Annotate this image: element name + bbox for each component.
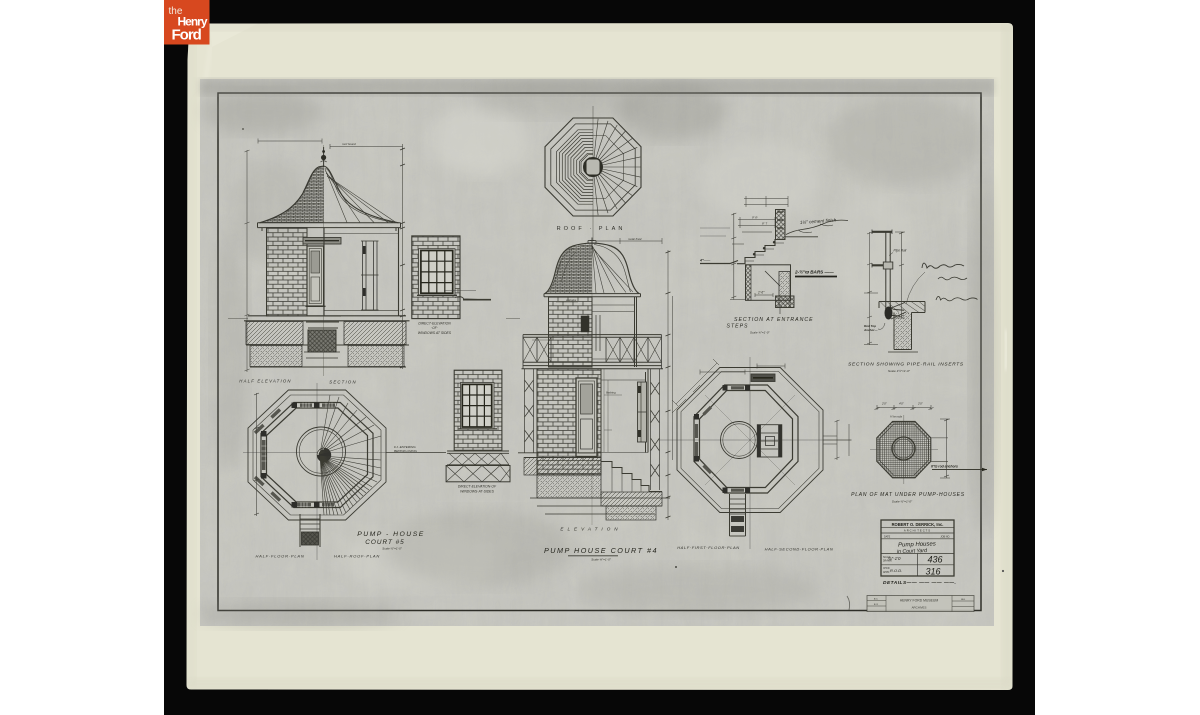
svg-text:¼″·1′0: ¼″·1′0 [888, 556, 901, 561]
svg-text:NEG: NEG [961, 599, 966, 601]
svg-text:2-½″ϖ BARS ——: 2-½″ϖ BARS —— [794, 269, 834, 275]
svg-text:Scale 1½″=1′-0″: Scale 1½″=1′-0″ [888, 369, 911, 373]
svg-text:SECTION SHOWING PIPE-RAIL INSE: SECTION SHOWING PIPE-RAIL INSERTS [848, 362, 964, 368]
svg-text:flashing: flashing [606, 391, 616, 395]
svg-text:R.O.D.: R.O.D. [890, 568, 902, 573]
svg-text:shingles: shingles [566, 298, 577, 302]
svg-text:Pipe Rail: Pipe Rail [894, 249, 907, 253]
svg-text:Scale ½″=1′-0″: Scale ½″=1′-0″ [382, 547, 403, 551]
svg-text:6″ϖ rod anchors: 6″ϖ rod anchors [931, 465, 958, 469]
svg-text:·OF·: ·OF· [431, 326, 438, 330]
svg-text:SECTION AT ENTRANCE: SECTION AT ENTRANCE [734, 317, 814, 323]
svg-text:2′0″: 2′0″ [917, 402, 924, 406]
svg-text:4″——: 4″—— [699, 259, 711, 263]
svg-text:DETAILS—— —— —— ——.: DETAILS—— —— —— ——. [883, 580, 956, 586]
svg-text:9″ R: 9″ R [752, 215, 757, 219]
svg-text:CHKD: CHKD [883, 568, 890, 570]
svg-text:2′-6″: 2′-6″ [757, 291, 765, 295]
svg-text:HALF·FLOOR·PLAN: HALF·FLOOR·PLAN [255, 554, 304, 559]
svg-text:in Court Yard: in Court Yard [897, 548, 928, 555]
svg-text:Ford: Ford [172, 27, 202, 44]
svg-text:Scale ¾″=1′-0″: Scale ¾″=1′-0″ [750, 331, 771, 335]
svg-text:roof board: roof board [342, 142, 356, 146]
svg-text:HALF·FIRST·FLOOR·PLAN: HALF·FIRST·FLOOR·PLAN [677, 545, 740, 550]
svg-text:316: 316 [925, 567, 940, 577]
svg-text:WINDOWS AT SIDES: WINDOWS AT SIDES [418, 331, 452, 335]
svg-text:DIRECT·ELEVATION·OF: DIRECT·ELEVATION·OF [458, 485, 497, 489]
svg-text:8″ T: 8″ T [762, 222, 767, 226]
svg-text:SECTION: SECTION [329, 380, 357, 385]
svg-text:ARCHITECTS: ARCHITECTS [904, 529, 931, 533]
svg-text:¾″ϖ rods: ¾″ϖ rods [890, 415, 903, 419]
svg-text:HALF ELEVATION: HALF ELEVATION [239, 379, 291, 384]
svg-text:2′0″: 2′0″ [881, 402, 888, 406]
svg-text:BEHIND LINING: BEHIND LINING [394, 449, 417, 453]
svg-text:PLAN OF MAT UNDER PUMP-HOUSES: PLAN OF MAT UNDER PUMP-HOUSES [851, 492, 965, 498]
svg-text:PUMP HOUSE COURT #4: PUMP HOUSE COURT #4 [544, 546, 658, 555]
svg-text:WINDOWS·AT·SIDES: WINDOWS·AT·SIDES [460, 489, 494, 493]
svg-text:JOB NO.: JOB NO. [940, 535, 950, 538]
svg-text:metal finial: metal finial [628, 237, 642, 241]
svg-text:PUMP - HOUSE: PUMP - HOUSE [357, 531, 425, 538]
svg-text:Scale ¼″=1′-0″: Scale ¼″=1′-0″ [591, 558, 612, 562]
svg-text:ARCHIVES: ARCHIVES [912, 606, 927, 610]
svg-text:436: 436 [927, 555, 942, 565]
svg-text:DIRECT·ELEVATION: DIRECT·ELEVATION [418, 322, 451, 326]
svg-text:STEPS: STEPS [727, 324, 749, 330]
svg-text:HENRY FORD MUSEUM: HENRY FORD MUSEUM [900, 599, 938, 603]
svg-text:ROOF · PLAN: ROOF · PLAN [557, 226, 626, 232]
svg-text:DATE: DATE [884, 535, 891, 538]
svg-text:Scale ½″=1′-0″: Scale ½″=1′-0″ [892, 500, 913, 504]
svg-text:Anchor—: Anchor— [863, 328, 879, 332]
svg-text:ELEVATION: ELEVATION [560, 527, 621, 532]
svg-text:ACC: ACC [874, 598, 879, 601]
svg-text:ROBERT O. DERRICK, Inc.: ROBERT O. DERRICK, Inc. [892, 522, 944, 527]
svg-text:HALF·ROOF·PLAN: HALF·ROOF·PLAN [334, 554, 380, 559]
svg-text:HALF·SECOND·FLOOR·PLAN: HALF·SECOND·FLOOR·PLAN [765, 547, 834, 552]
svg-text:BOX: BOX [874, 604, 879, 606]
svg-text:COURT #5: COURT #5 [365, 539, 405, 546]
svg-text:APPD: APPD [883, 571, 890, 574]
